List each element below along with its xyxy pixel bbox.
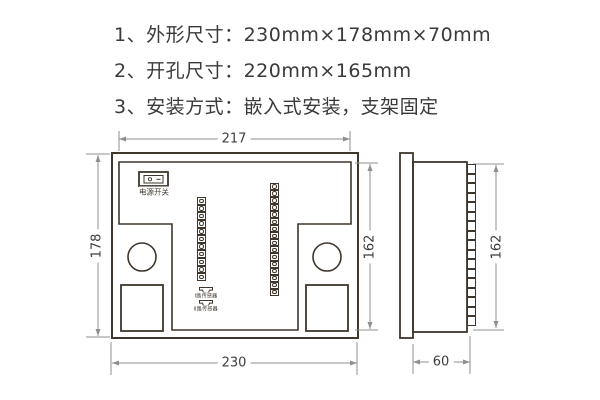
terminal-cell [467,307,476,317]
terminal-cell [270,232,279,239]
dim-60: 60 [429,355,454,370]
dimension-diagram-page: { "notes": { "line1": "1、外形尺寸：230mm×178m… [0,0,600,400]
screw-icon [272,269,277,274]
terminal-cell [197,235,206,243]
screw-icon [199,214,204,219]
terminal-cell [197,243,206,251]
terminal-cell [270,289,279,296]
screw-icon [199,275,204,280]
side-view-bezel [400,153,413,338]
power-switch-label: 电源开关 [139,187,169,198]
terminal-cell [467,202,476,212]
terminal-cell [270,211,279,218]
right-mount-hole-circle [313,243,341,271]
rear-left-terminal-strip [197,197,206,281]
screw-icon [199,206,204,211]
terminal-cell [467,269,476,279]
terminal-cell [197,205,206,213]
terminal-cell [270,239,279,246]
terminal-cell [270,190,279,197]
terminal-cell [270,261,279,268]
rear-right-terminal-strip [270,183,279,296]
terminal-cell [197,228,206,236]
screw-icon [272,212,277,217]
screw-icon [272,220,277,225]
terminal-cell [467,174,476,184]
terminal-cell [467,316,476,326]
terminal-cell [197,197,206,205]
sensor2-label: Ⅱ路传感器 [194,306,218,313]
dim-217: 217 [218,132,251,147]
terminal-cell [467,288,476,298]
right-mount-square [306,285,348,331]
side-terminal-ladder [467,164,476,326]
screw-icon [272,205,277,210]
screw-icon [272,241,277,246]
screw-icon [272,262,277,267]
terminal-cell [467,278,476,288]
power-switch-icon [139,172,168,186]
screw-icon [272,283,277,288]
terminal-cell [467,212,476,222]
terminal-cell [270,183,279,190]
screw-icon [272,248,277,253]
screw-icon [272,234,277,239]
terminal-cell [467,259,476,269]
terminal-cell [467,164,476,174]
terminal-cell [270,253,279,260]
dim-230: 230 [218,356,251,371]
side-view-outline [400,153,467,338]
terminal-cell [270,218,279,225]
screw-icon [199,229,204,234]
screw-icon [199,244,204,249]
terminal-cell [270,246,279,253]
left-mount-square [121,285,163,331]
screw-icon [199,237,204,242]
screw-icon [272,227,277,232]
terminal-cell [270,282,279,289]
terminal-cell [270,225,279,232]
terminal-cell [197,258,206,266]
dim-162-rear: 162 [363,231,378,264]
terminal-cell [467,231,476,241]
dim-178: 178 [90,230,105,263]
terminal-cell [467,221,476,231]
side-view-body [413,162,467,332]
screw-icon [272,191,277,196]
screw-icon [272,276,277,281]
terminal-cell [270,275,279,282]
sensor1-label: Ⅰ路传感器 [195,293,218,300]
screw-icon [199,199,204,204]
terminal-cell [270,268,279,275]
screw-icon [199,221,204,226]
screw-icon [272,184,277,189]
terminal-cell [467,183,476,193]
screw-icon [199,260,204,265]
terminal-cell [197,266,206,274]
terminal-cell [197,250,206,258]
screw-icon [272,290,277,295]
terminal-cell [467,297,476,307]
screw-icon [272,255,277,260]
terminal-cell [467,240,476,250]
terminal-cell [270,204,279,211]
screw-icon [199,252,204,257]
left-mount-hole-circle [128,243,156,271]
dim-162-side: 162 [490,231,505,264]
terminal-cell [467,193,476,203]
terminal-cell [197,220,206,228]
terminal-cell [270,197,279,204]
terminal-cell [467,250,476,260]
screw-icon [199,267,204,272]
screw-icon [272,198,277,203]
technical-drawing [0,0,600,400]
terminal-cell [197,212,206,220]
terminal-cell [197,273,206,281]
